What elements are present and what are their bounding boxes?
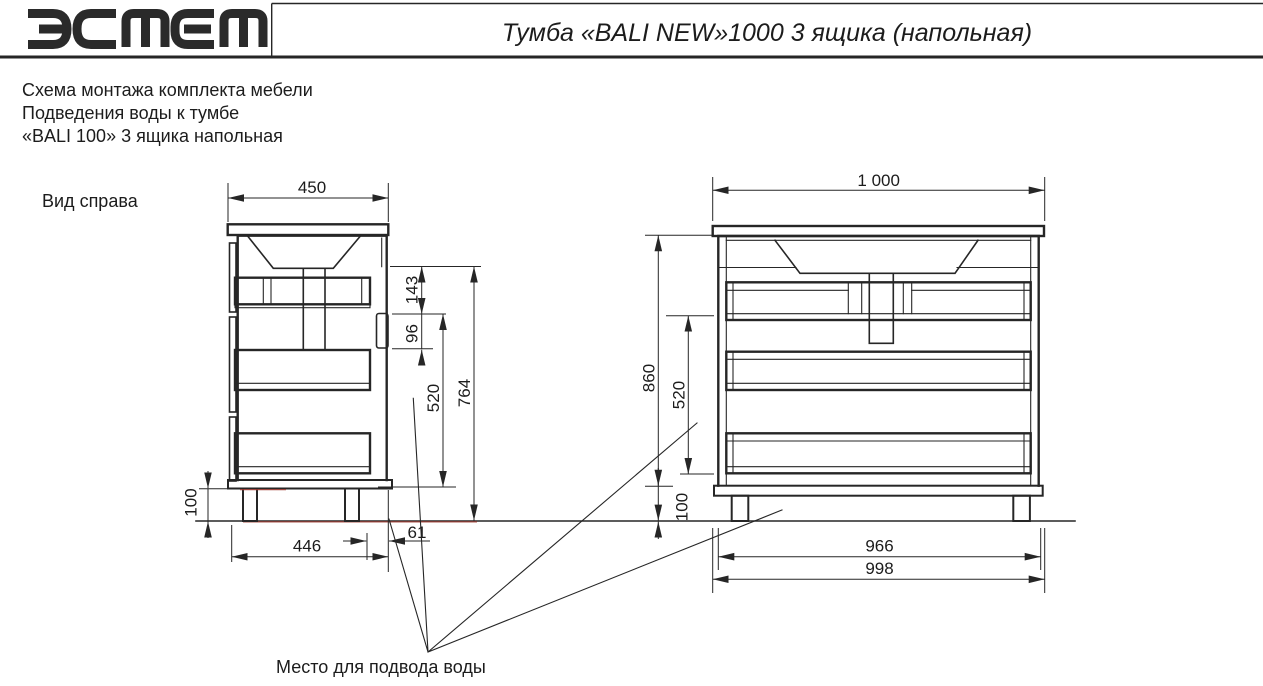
document-title: Тумба «BALI NEW»1000 3 ящика (напольная) bbox=[502, 19, 1032, 47]
dim-front-total-height: 860 bbox=[640, 364, 659, 392]
dim-front-drawers-height: 520 bbox=[670, 381, 689, 409]
dim-side-legs-height: 100 bbox=[182, 488, 201, 516]
floor-line bbox=[196, 521, 1075, 522]
drawing-sheet: эстет Тумба «BALI NEW»1000 3 ящика (напо… bbox=[0, 0, 1263, 686]
dim-side-back-gap: 61 bbox=[408, 523, 427, 542]
brand-logo: эстет bbox=[28, 14, 263, 48]
header-bar: эстет Тумба «BALI NEW»1000 3 ящика (напо… bbox=[0, 4, 1263, 58]
side-view-label: Вид справа bbox=[42, 191, 139, 211]
subtitle-block: Схема монтажа комплекта мебели Подведени… bbox=[22, 80, 313, 146]
subtitle-line-2: Подведения воды к тумбе bbox=[22, 103, 239, 123]
dim-front-legs-span: 966 bbox=[865, 537, 893, 556]
dim-front-legs-height: 100 bbox=[673, 493, 692, 521]
dim-side-width: 450 bbox=[298, 178, 326, 197]
dim-side-drawers-height: 520 bbox=[424, 384, 443, 412]
drawing-canvas: эстет Тумба «BALI NEW»1000 3 ящика (напо… bbox=[0, 0, 1263, 686]
dim-side-sink-zone: 143 bbox=[403, 276, 422, 304]
dim-front-width: 1 000 bbox=[857, 171, 900, 190]
front-view-dimensions: 1 000 860 520 100 966 998 bbox=[640, 171, 1045, 593]
water-supply-label: Место для подвода воды bbox=[276, 657, 486, 677]
dim-front-base-width: 998 bbox=[865, 559, 893, 578]
subtitle-line-1: Схема монтажа комплекта мебели bbox=[22, 80, 313, 100]
side-view-drawing bbox=[228, 224, 392, 521]
dim-side-depth: 446 bbox=[293, 537, 321, 556]
water-supply-leaders bbox=[389, 398, 782, 652]
side-view-dimensions: 450 143 96 520 764 100 446 61 bbox=[182, 178, 482, 572]
dim-side-handle-zone: 96 bbox=[403, 324, 422, 343]
front-view-drawing bbox=[713, 226, 1044, 521]
dim-side-body-height: 764 bbox=[455, 379, 474, 407]
subtitle-line-3: «BALI 100» 3 ящика напольная bbox=[22, 126, 283, 146]
